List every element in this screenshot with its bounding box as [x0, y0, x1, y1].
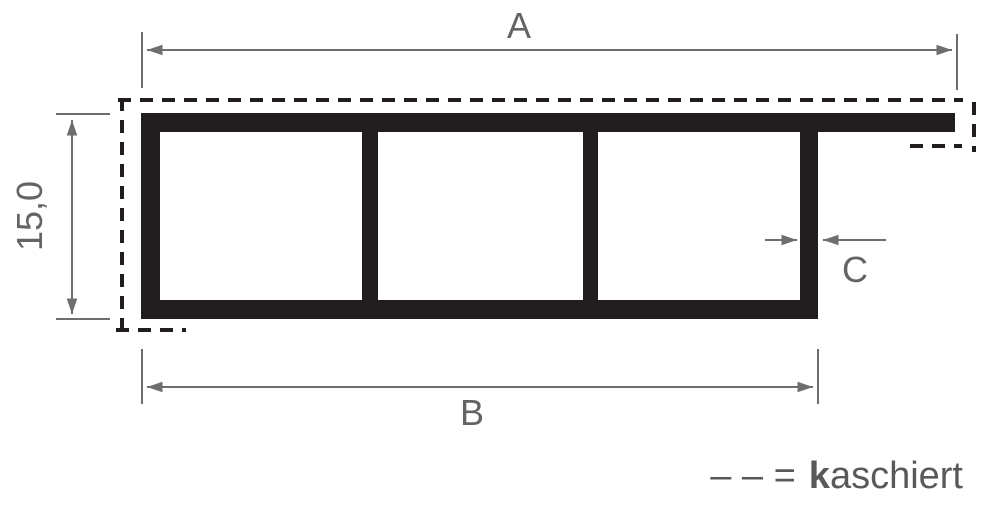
dim-a-label: A [507, 5, 531, 46]
profile-bottom-wall [141, 300, 818, 319]
legend-dash-symbol: – – = [710, 455, 796, 497]
laminate-dashed-outline [116, 98, 974, 334]
profile-top-wall-and-flange [141, 113, 955, 132]
profile-cross-section-diagram: A 15,0 B C – – =kaschiert [0, 0, 994, 523]
dim-height-label: 15,0 [9, 181, 50, 251]
profile-cross-section [141, 113, 955, 319]
legend-kaschiert: – – =kaschiert [710, 455, 963, 497]
profile-inner-wall-1 [362, 113, 378, 319]
profile-left-wall [141, 113, 160, 319]
legend-term-bold: k [809, 455, 831, 497]
legend-term-rest: aschiert [830, 455, 963, 497]
dimension-height [56, 114, 110, 319]
dim-b-label: B [460, 392, 484, 433]
profile-inner-wall-2 [583, 113, 598, 319]
dimension-a [142, 32, 957, 90]
technical-drawing-canvas: A 15,0 B C – – =kaschiert [0, 0, 994, 523]
profile-right-wall [800, 113, 818, 319]
dim-c-label: C [842, 249, 868, 290]
